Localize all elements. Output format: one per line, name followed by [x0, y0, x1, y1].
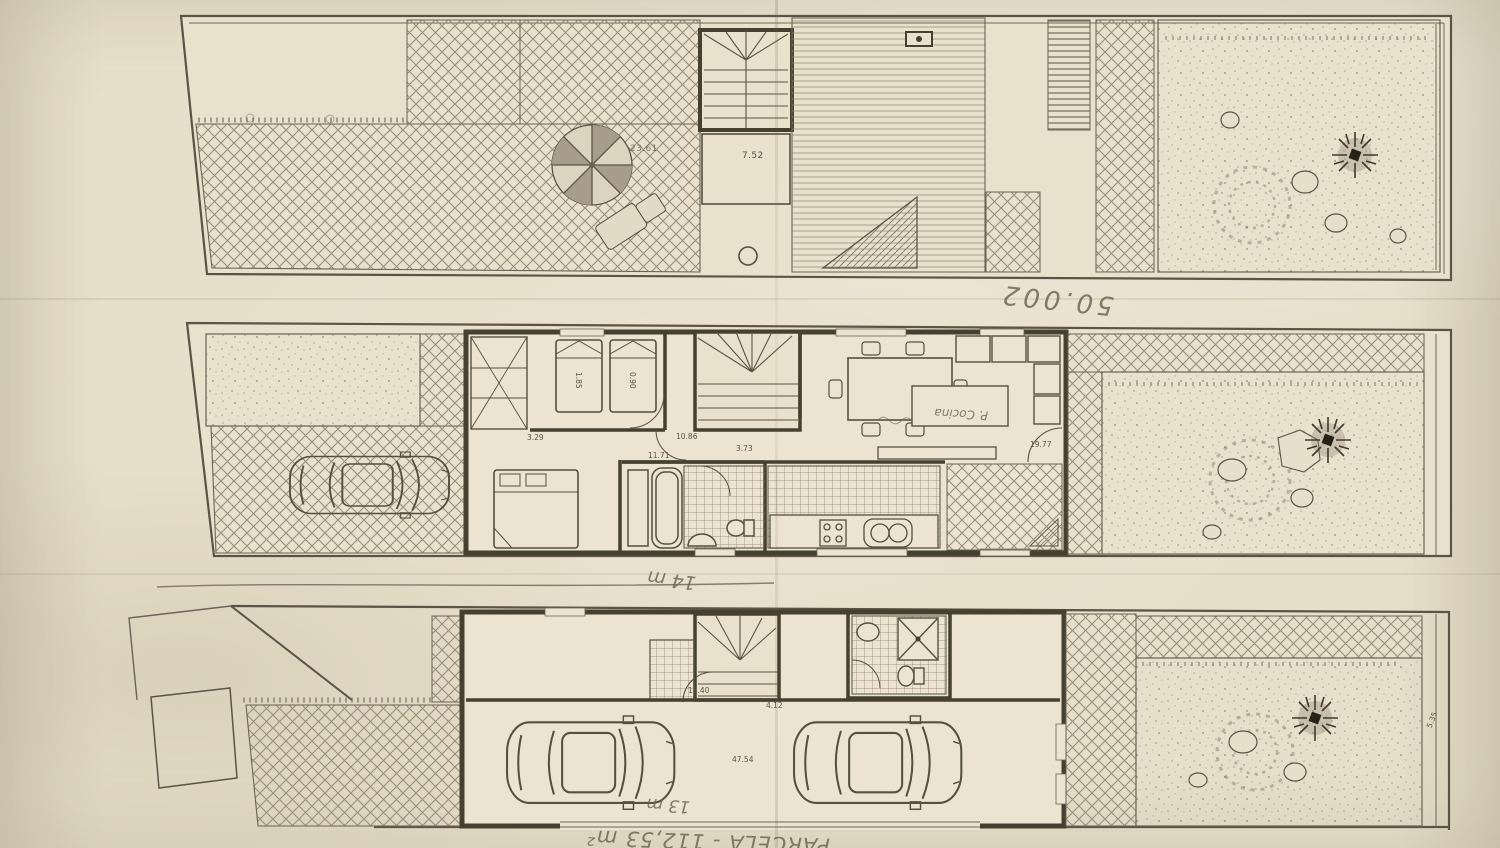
kitchen-note: P. Cocina [934, 406, 988, 423]
main-floor-plan: 1.85 0.90 3.29 10.86 11.71 3.73 [187, 323, 1451, 556]
parasol-icon [552, 125, 632, 205]
roof-deck-area-label: 23.61 [630, 144, 658, 154]
roof-room-area-label: 7.52 [742, 151, 764, 161]
staircase [695, 332, 800, 430]
rear-patio [947, 464, 1062, 550]
handwritten-note-top: 50.002 [998, 279, 1115, 321]
roof-room [702, 134, 790, 204]
roof-stairwell [700, 30, 792, 130]
roof-level-garden [1158, 20, 1440, 272]
floor-plan-drawing: 7.52 23.61 50.002 [0, 0, 1500, 848]
sink [857, 623, 879, 641]
roof-terrace-plan: 7.52 23.61 [181, 16, 1451, 280]
side-boundary [231, 606, 352, 700]
handwritten-frontage-mid: 14 m [646, 566, 697, 594]
garage-area-label: 47.54 [732, 755, 754, 764]
roof-drain [739, 247, 757, 265]
toilet [727, 520, 745, 536]
toilet [898, 666, 914, 686]
hall-label: 4.12 [766, 701, 783, 710]
garden-side-label: 5.35 [1425, 710, 1440, 729]
sign-plate [151, 688, 237, 788]
bathroom [848, 612, 950, 698]
front-paving [246, 705, 462, 826]
ground-floor-plan: 13.40 4.12 47.54 [129, 606, 1449, 830]
living-entry-label: 19.77 [1030, 440, 1052, 449]
front-garden-bed [206, 334, 420, 426]
rear-garden-ground: 5.35 [1066, 614, 1439, 827]
landing-label: 10.86 [676, 432, 698, 441]
driveway [211, 426, 466, 553]
entry-label: 13.40 [688, 686, 710, 695]
rear-garden-main [1068, 334, 1436, 556]
scanned-floor-plan-sheet: 7.52 23.61 50.002 [0, 0, 1500, 848]
bed-length-label: 1.85 [574, 372, 583, 389]
bedroom-dim-label: 3.29 [527, 433, 544, 442]
sideboard [878, 447, 996, 459]
ladder-strip [1048, 20, 1090, 130]
stair-hall-label: 3.73 [736, 444, 753, 453]
handwritten-frontage-bottom: 13 m [646, 794, 691, 817]
bed-width-label: 0.90 [628, 372, 637, 389]
